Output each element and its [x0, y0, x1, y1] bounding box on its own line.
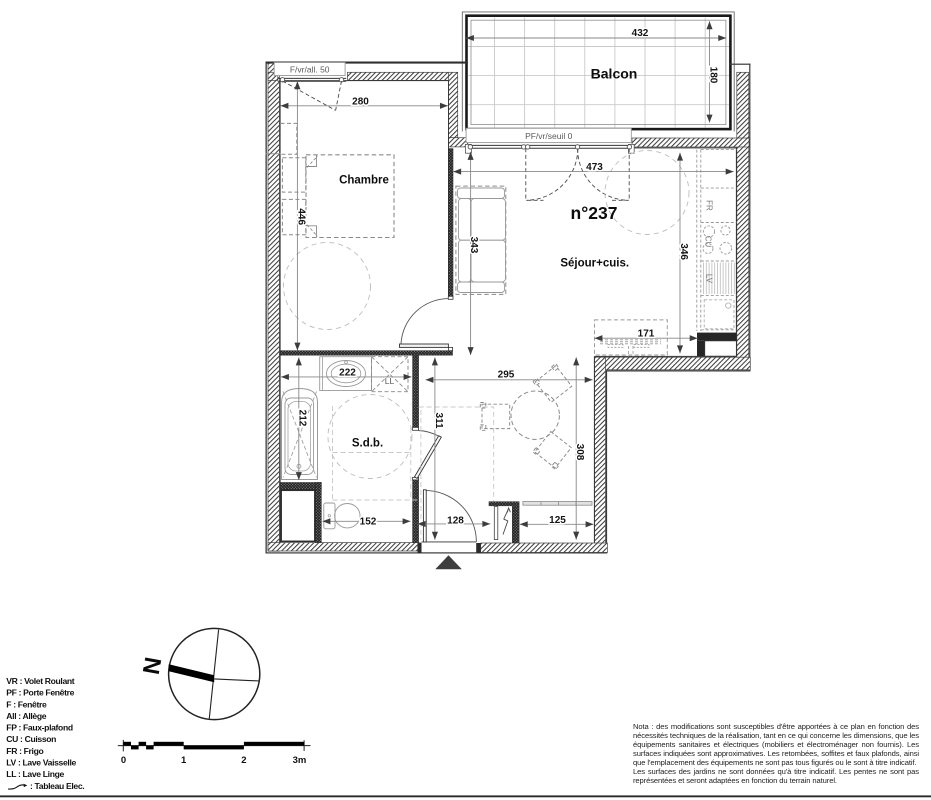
svg-text:446: 446 [295, 208, 306, 225]
svg-text:LV : Lave Vaisselle: LV : Lave Vaisselle [6, 758, 76, 768]
svg-text:LV: LV [705, 274, 714, 284]
svg-text:All : Allège: All : Allège [6, 711, 46, 721]
svg-text:311: 311 [433, 412, 444, 429]
svg-text:FP : Faux-plafond: FP : Faux-plafond [6, 723, 73, 733]
svg-text:n°237: n°237 [571, 203, 618, 223]
svg-text:346: 346 [678, 243, 689, 260]
svg-text:2: 2 [241, 755, 246, 766]
svg-text:308: 308 [574, 444, 585, 461]
svg-text:152: 152 [360, 516, 377, 527]
svg-text:343: 343 [468, 237, 479, 254]
svg-text:212: 212 [297, 410, 308, 427]
svg-text:FR: FR [705, 200, 714, 211]
svg-text:VR : Volet Roulant: VR : Volet Roulant [6, 676, 75, 686]
svg-text:CU: CU [704, 236, 713, 248]
svg-text:: Tableau Elec.: : Tableau Elec. [30, 781, 84, 791]
svg-text:F : Fenêtre: F : Fenêtre [6, 699, 47, 709]
svg-text:LL: LL [385, 376, 395, 386]
svg-text:3m: 3m [293, 755, 307, 766]
svg-text:Séjour+cuis.: Séjour+cuis. [560, 258, 629, 270]
svg-text:222: 222 [339, 368, 356, 379]
svg-text:S.d.b.: S.d.b. [352, 438, 383, 450]
svg-text:280: 280 [352, 96, 369, 107]
svg-text:432: 432 [632, 28, 649, 39]
svg-text:180: 180 [707, 67, 718, 84]
svg-text:F/vr/all. 50: F/vr/all. 50 [290, 64, 330, 74]
svg-text:PF/vr/seuil 0: PF/vr/seuil 0 [525, 131, 573, 141]
svg-text:1: 1 [181, 755, 187, 766]
svg-text:PF : Porte Fenêtre: PF : Porte Fenêtre [6, 688, 74, 698]
svg-text:CU : Cuisson: CU : Cuisson [6, 734, 56, 744]
svg-text:FR : Frigo: FR : Frigo [6, 746, 43, 756]
svg-text:125: 125 [549, 515, 566, 526]
svg-text:Chambre: Chambre [339, 174, 389, 186]
svg-text:171: 171 [638, 329, 655, 340]
svg-text:LL : Lave Linge: LL : Lave Linge [6, 769, 64, 779]
svg-text:0: 0 [121, 755, 126, 766]
svg-text:128: 128 [447, 515, 464, 526]
svg-text:295: 295 [498, 370, 515, 381]
svg-text:473: 473 [586, 162, 603, 173]
svg-text:Balcon: Balcon [591, 66, 638, 82]
